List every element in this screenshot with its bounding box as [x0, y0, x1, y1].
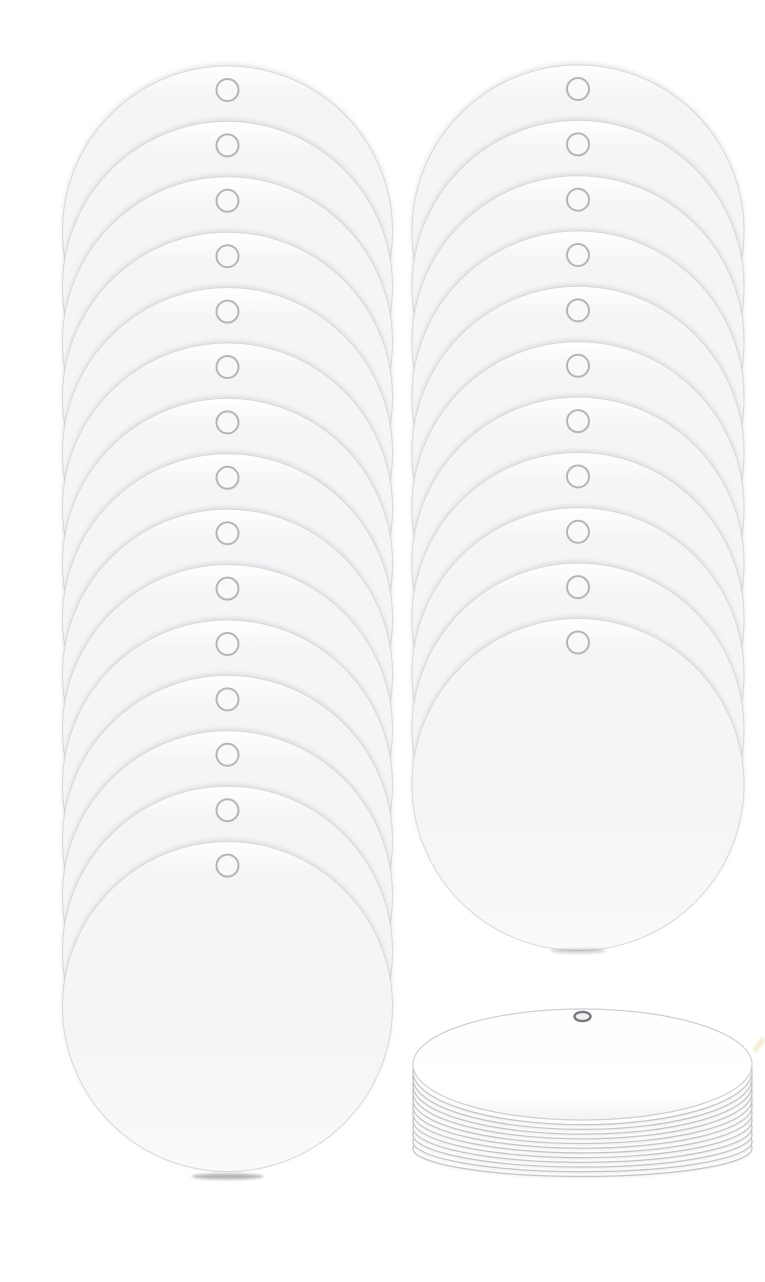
hanging-hole	[217, 301, 239, 323]
hanging-hole	[217, 688, 239, 710]
hanging-hole	[217, 134, 239, 156]
hanging-hole	[567, 410, 589, 432]
hanging-hole	[567, 78, 589, 100]
right-fanned-stack	[412, 65, 744, 954]
hanging-hole	[217, 467, 239, 489]
hanging-hole	[217, 245, 239, 267]
hanging-hole	[217, 356, 239, 378]
hanging-hole	[217, 633, 239, 655]
hanging-hole	[217, 79, 239, 101]
hanging-hole	[567, 244, 589, 266]
hanging-hole	[567, 576, 589, 598]
photo-artifact-speck	[752, 1037, 765, 1053]
product-photo	[0, 0, 765, 1282]
left-fanned-stack	[63, 66, 393, 1180]
hanging-hole	[567, 465, 589, 487]
hanging-hole	[217, 799, 239, 821]
hanging-hole	[575, 1012, 591, 1021]
acrylic-disc	[412, 619, 744, 951]
hanging-hole	[217, 522, 239, 544]
scene-svg	[0, 0, 765, 1282]
side-view-stack	[413, 1009, 752, 1176]
hanging-hole	[567, 189, 589, 211]
hanging-hole	[217, 744, 239, 766]
hanging-hole	[567, 632, 589, 654]
hanging-hole	[567, 299, 589, 321]
top-disc-face	[413, 1009, 752, 1120]
contact-shadow	[192, 1174, 264, 1180]
disc-face	[63, 842, 393, 1172]
hanging-hole	[567, 521, 589, 543]
hanging-hole	[217, 578, 239, 600]
hanging-hole	[567, 355, 589, 377]
contact-shadow	[550, 949, 606, 954]
hanging-hole	[217, 190, 239, 212]
disc-face	[412, 619, 744, 951]
acrylic-disc	[63, 842, 393, 1172]
hanging-hole	[217, 411, 239, 433]
hanging-hole	[217, 855, 239, 877]
hanging-hole	[567, 133, 589, 155]
